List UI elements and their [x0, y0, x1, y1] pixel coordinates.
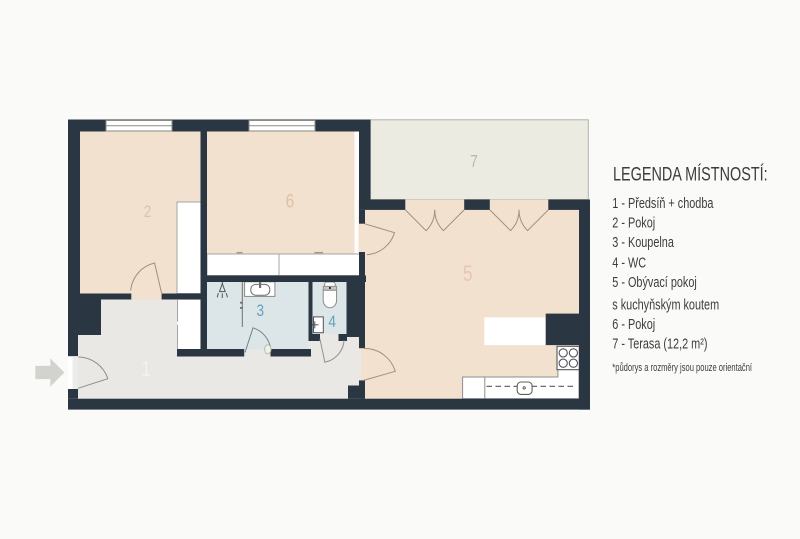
svg-text:3: 3 — [257, 301, 265, 320]
svg-text:6: 6 — [286, 190, 295, 212]
svg-text:4 - WC: 4 - WC — [612, 254, 646, 271]
svg-text:5 - Obývací pokoj: 5 - Obývací pokoj — [612, 274, 696, 291]
svg-text:7 - Terasa (12,2 m²): 7 - Terasa (12,2 m²) — [612, 335, 707, 352]
svg-text:2: 2 — [144, 203, 152, 222]
svg-text:LEGENDA MÍSTNOSTÍ:: LEGENDA MÍSTNOSTÍ: — [613, 162, 768, 185]
svg-text:7: 7 — [470, 153, 478, 172]
svg-text:5: 5 — [463, 262, 473, 286]
svg-text:*půdorys a rozměry jsou pouze: *půdorys a rozměry jsou pouze orientační — [612, 362, 752, 375]
svg-text:6 - Pokoj: 6 - Pokoj — [612, 315, 655, 332]
svg-text:1: 1 — [142, 358, 151, 381]
svg-text:s kuchyňským koutem: s kuchyňským koutem — [612, 296, 719, 313]
svg-text:2 - Pokoj: 2 - Pokoj — [612, 214, 655, 231]
svg-text:3 - Koupelna: 3 - Koupelna — [612, 233, 674, 250]
svg-text:1 - Předsíň + chodba: 1 - Předsíň + chodba — [612, 194, 714, 211]
svg-text:4: 4 — [328, 313, 336, 332]
